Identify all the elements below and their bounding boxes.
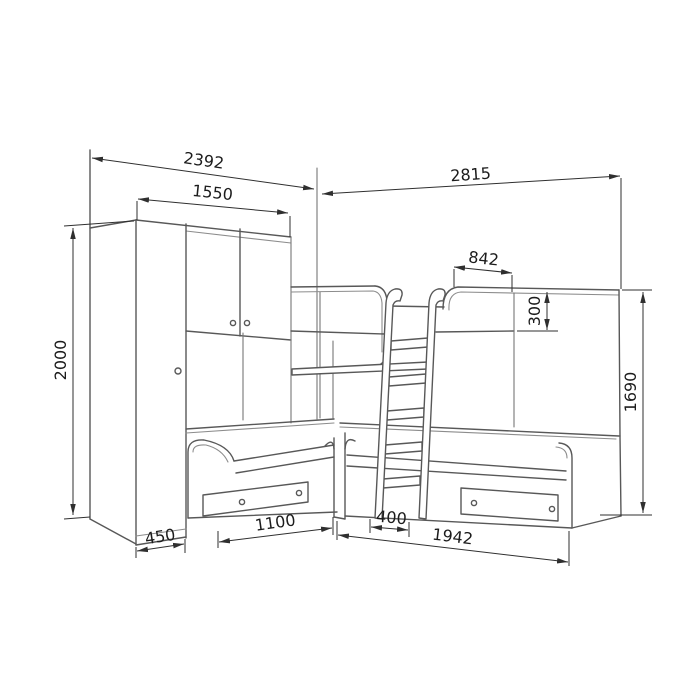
dimension-842: 842 — [454, 247, 512, 292]
cabinet-handle-left — [230, 320, 235, 325]
dim-label-1100: 1100 — [254, 510, 297, 534]
dim-label-1942: 1942 — [431, 525, 474, 549]
dim-label-400: 400 — [375, 507, 407, 529]
dimension-2815: 2815 — [322, 164, 621, 289]
ladder-tread — [389, 374, 426, 386]
ladder-rail-right — [419, 289, 445, 519]
ladder-tread — [387, 408, 424, 420]
ladder-tread — [383, 476, 420, 488]
dimension-1942: 1942 — [337, 521, 569, 566]
wardrobe-door-handle — [175, 368, 181, 374]
dim-label-300: 300 — [525, 296, 544, 327]
dim-label-1550: 1550 — [191, 181, 233, 204]
cabinet-handle-right — [244, 320, 249, 325]
dim-label-2392: 2392 — [182, 148, 225, 172]
furniture-dimension-drawing: 2392 1550 2815 842 300 2 — [0, 0, 700, 700]
dimension-1690: 1690 — [600, 290, 652, 515]
wardrobe — [90, 150, 291, 545]
left-drawer-handle-2 — [296, 490, 301, 495]
dimensions: 2392 1550 2815 842 300 2 — [51, 148, 652, 566]
dim-label-450: 450 — [144, 525, 177, 549]
dimension-2000: 2000 — [51, 221, 134, 519]
wall-shelf — [292, 362, 428, 375]
right-drawer-handle-2 — [549, 506, 554, 511]
dim-label-1690: 1690 — [621, 372, 640, 413]
dimension-400: 400 — [370, 507, 409, 537]
right-drawer-handle-1 — [471, 500, 476, 505]
dimension-300: 300 — [517, 292, 558, 331]
left-bed — [186, 419, 337, 518]
ladder-tread — [391, 338, 428, 350]
dim-label-2000: 2000 — [51, 340, 70, 381]
dim-label-2815: 2815 — [450, 164, 492, 186]
ladder-tread — [385, 442, 422, 454]
ladder — [375, 289, 445, 519]
technical-drawing-canvas: 2392 1550 2815 842 300 2 — [0, 0, 700, 700]
left-drawer-handle-1 — [239, 499, 244, 504]
dim-label-842: 842 — [467, 247, 499, 269]
upper-bunk — [291, 168, 620, 436]
